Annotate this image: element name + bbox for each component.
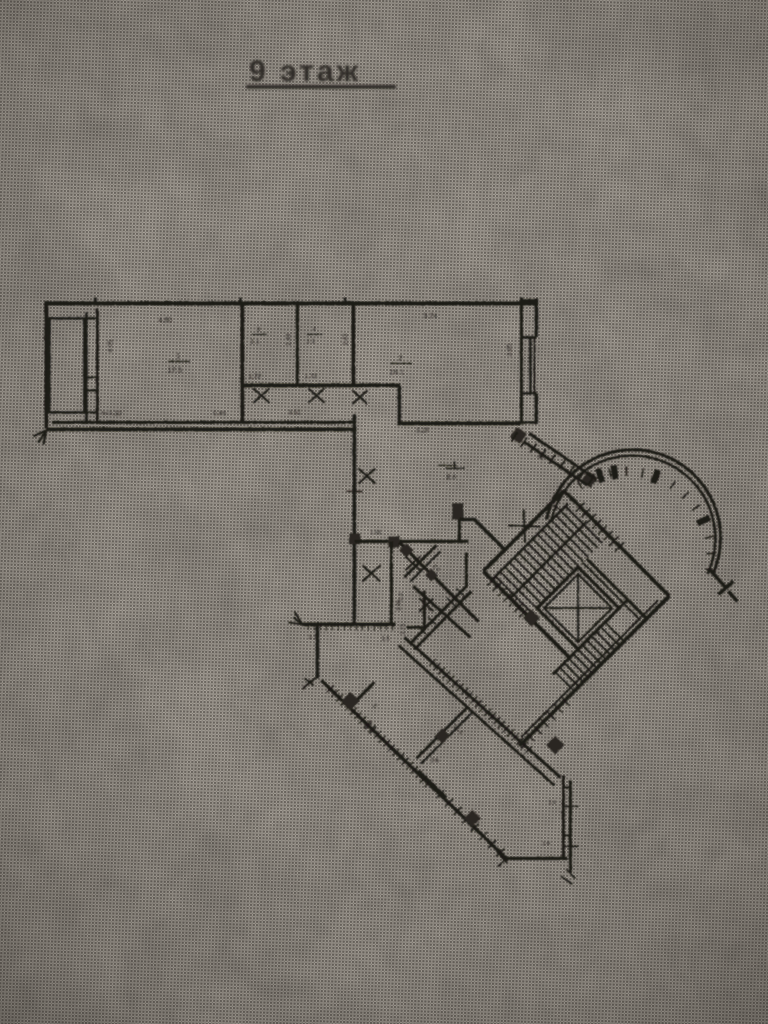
svg-text:1.75: 1.75 (400, 623, 406, 634)
svg-text:2.43: 2.43 (343, 333, 349, 345)
svg-text:9 этаж: 9 этаж (249, 55, 361, 88)
svg-text:1.72: 1.72 (304, 373, 317, 380)
svg-text:3.51: 3.51 (288, 409, 301, 416)
svg-text:2.2: 2.2 (398, 592, 404, 600)
svg-text:8.6: 8.6 (446, 474, 456, 481)
svg-text:1.9: 1.9 (542, 841, 550, 847)
svg-text:3.05: 3.05 (506, 343, 513, 356)
svg-text:1.6: 1.6 (381, 636, 390, 642)
svg-text:4.05: 4.05 (107, 339, 114, 352)
svg-text:4.60: 4.60 (158, 317, 172, 324)
svg-text:1: 1 (176, 353, 180, 360)
svg-text:0.88: 0.88 (213, 410, 226, 417)
svg-text:3.6: 3.6 (430, 758, 439, 764)
svg-text:3: 3 (256, 326, 260, 333)
svg-text:1.56: 1.56 (370, 530, 381, 536)
svg-text:17.3: 17.3 (167, 365, 182, 374)
svg-text:h=3.30: h=3.30 (101, 410, 121, 417)
svg-text:1.1: 1.1 (306, 338, 315, 345)
svg-text:5.28: 5.28 (416, 427, 429, 434)
svg-text:16.1: 16.1 (389, 367, 404, 376)
svg-text:4: 4 (312, 326, 316, 333)
svg-text:2.43: 2.43 (286, 333, 292, 345)
svg-text:1.72: 1.72 (248, 373, 261, 380)
svg-text:3.74: 3.74 (423, 313, 437, 320)
svg-text:2.4: 2.4 (548, 800, 556, 806)
svg-text:2: 2 (398, 355, 402, 362)
svg-text:1.1: 1.1 (250, 338, 259, 345)
